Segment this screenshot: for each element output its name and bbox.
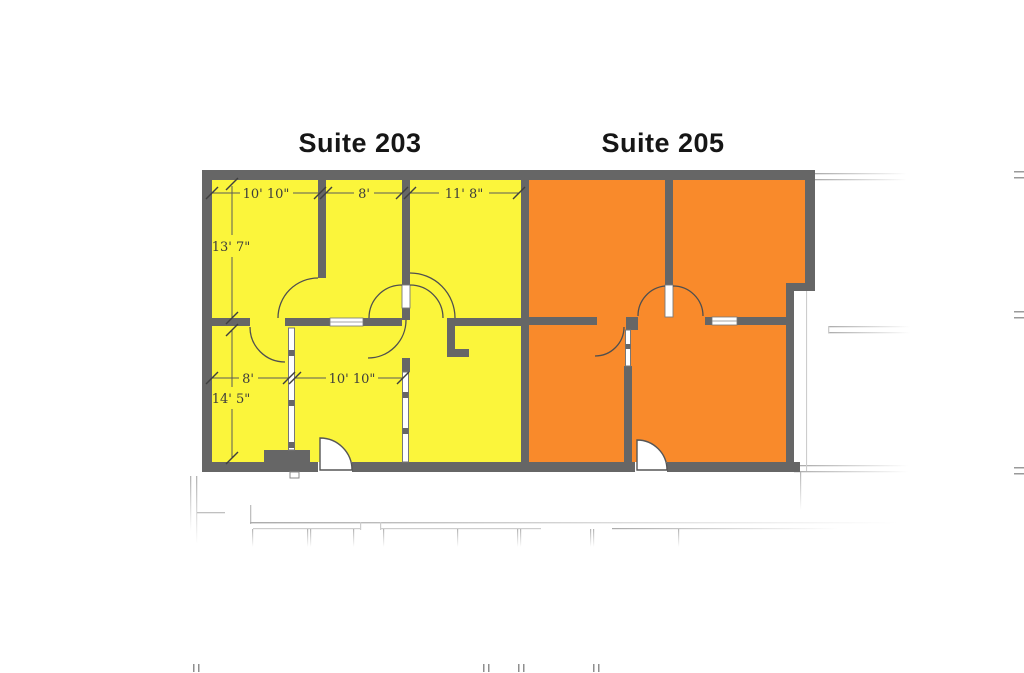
wall-right-upper	[805, 170, 815, 291]
dim-label-top-room1: 10' 10"	[243, 187, 290, 202]
dim-label-top-room3: 11' 8"	[445, 187, 484, 202]
suite-203-title: Suite 203	[298, 128, 421, 158]
room-divider-stubs	[252, 472, 801, 547]
wall-suite-divider	[521, 170, 529, 472]
wall-top	[202, 170, 815, 180]
dim-label-left-room-depth: 13' 7"	[212, 240, 251, 255]
dim-label-lower-middle-width: 10' 10"	[329, 372, 376, 387]
dim-label-lower-depth: 14' 5"	[212, 392, 251, 407]
dim-label-lower-left-width: 8'	[242, 372, 254, 387]
casework-foot	[290, 472, 299, 478]
suite-205-title: Suite 205	[601, 128, 724, 158]
wall-right-lower	[786, 283, 794, 472]
wall-left	[202, 170, 212, 472]
floor-plan: 10' 10" 8' 11' 8" 13' 7" 8' 10' 10" 14' …	[0, 0, 1024, 673]
floor-plan-drawing: 10' 10" 8' 11' 8" 13' 7" 8' 10' 10" 14' …	[0, 0, 1024, 673]
bottom-edge-marks	[193, 664, 600, 672]
casework-block	[264, 450, 310, 471]
right-edge-marks	[1014, 171, 1024, 475]
dim-label-top-room2: 8'	[358, 187, 370, 202]
